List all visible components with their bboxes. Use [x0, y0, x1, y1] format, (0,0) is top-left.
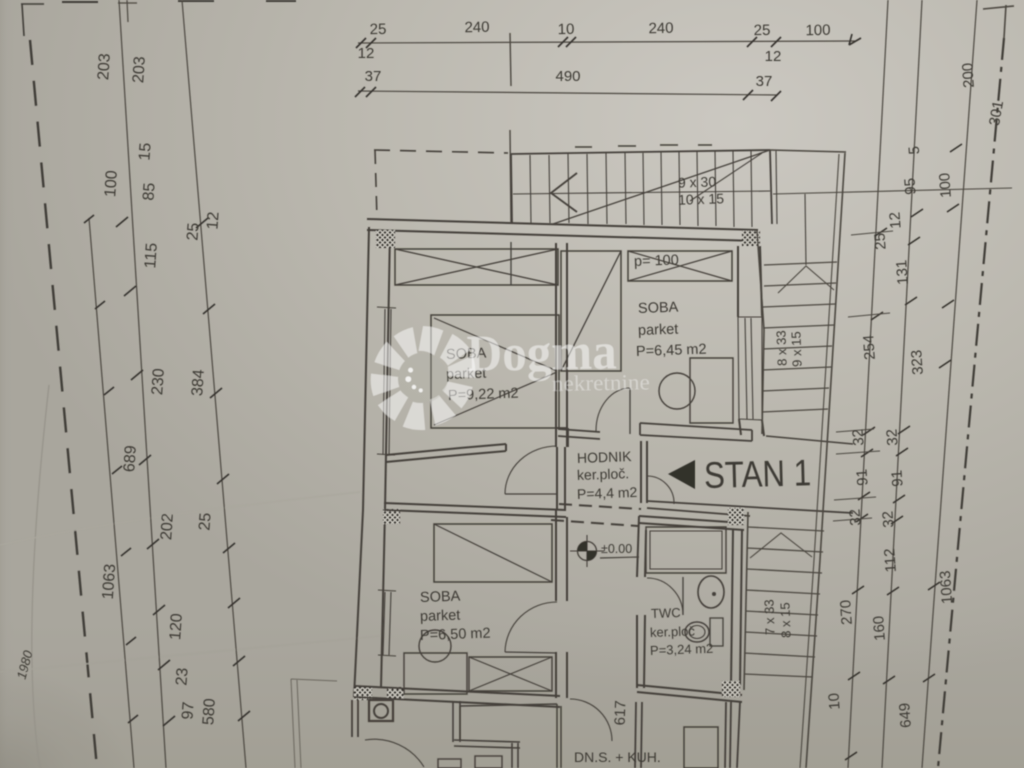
svg-text:SOBA: SOBA [638, 300, 679, 317]
svg-text:8 x 15: 8 x 15 [777, 602, 793, 638]
svg-text:32: 32 [879, 510, 897, 528]
svg-text:P=4,4 m2: P=4,4 m2 [577, 484, 638, 502]
svg-text:95: 95 [901, 177, 919, 195]
svg-text:TWC: TWC [651, 605, 681, 621]
svg-text:10: 10 [558, 21, 575, 38]
svg-text:37: 37 [756, 73, 773, 90]
svg-text:120: 120 [167, 613, 186, 641]
svg-text:580: 580 [200, 698, 219, 726]
svg-text:1063: 1063 [100, 563, 119, 600]
svg-text:DN.S. + KUH.: DN.S. + KUH. [574, 749, 661, 765]
svg-text:203: 203 [95, 53, 114, 81]
svg-text:384: 384 [189, 369, 208, 397]
svg-text:689: 689 [121, 445, 140, 473]
svg-text:±0.00: ±0.00 [601, 542, 632, 556]
svg-text:323: 323 [908, 349, 927, 375]
svg-text:91: 91 [853, 468, 871, 486]
svg-text:115: 115 [142, 242, 161, 269]
svg-text:23: 23 [173, 667, 191, 686]
svg-text:p= 100: p= 100 [634, 252, 679, 270]
svg-text:25: 25 [871, 232, 889, 250]
svg-text:9 x 30: 9 x 30 [678, 173, 717, 190]
svg-text:12: 12 [204, 211, 222, 230]
svg-text:240: 240 [464, 19, 489, 36]
svg-text:490: 490 [555, 68, 580, 85]
svg-text:254: 254 [860, 334, 879, 360]
svg-text:ker.ploč.: ker.ploč. [577, 465, 630, 483]
svg-text:100: 100 [102, 170, 121, 198]
svg-text:617: 617 [612, 700, 630, 726]
svg-text:STAN 1: STAN 1 [704, 452, 812, 496]
svg-text:nekretnine: nekretnine [552, 369, 650, 396]
svg-text:100: 100 [805, 22, 830, 39]
svg-text:ker.ploč: ker.ploč [650, 623, 696, 640]
svg-text:12: 12 [358, 45, 375, 62]
svg-text:parket: parket [420, 608, 461, 625]
svg-text:12: 12 [886, 211, 904, 229]
svg-text:SOBA: SOBA [420, 589, 461, 606]
svg-text:131: 131 [893, 259, 912, 285]
svg-text:85: 85 [140, 182, 158, 201]
svg-text:649: 649 [896, 702, 915, 728]
svg-text:112: 112 [881, 548, 900, 573]
svg-text:25: 25 [370, 21, 387, 38]
svg-text:10: 10 [825, 692, 843, 710]
svg-text:10 x 15: 10 x 15 [678, 190, 725, 208]
svg-text:100: 100 [936, 172, 955, 198]
svg-text:9 x 15: 9 x 15 [788, 331, 804, 367]
svg-text:parket: parket [638, 322, 679, 339]
svg-text:160: 160 [870, 615, 889, 641]
svg-text:32: 32 [846, 508, 864, 526]
svg-text:15: 15 [136, 142, 154, 161]
svg-text:240: 240 [648, 20, 673, 37]
svg-text:25: 25 [196, 512, 214, 531]
svg-text:HODNIK: HODNIK [577, 448, 633, 466]
svg-text:97: 97 [179, 701, 197, 720]
svg-text:203: 203 [130, 56, 149, 84]
svg-text:91: 91 [888, 469, 906, 487]
svg-text:P=6,50 m2: P=6,50 m2 [420, 626, 491, 644]
svg-text:202: 202 [158, 513, 177, 541]
svg-text:200: 200 [959, 62, 978, 88]
svg-text:37: 37 [365, 68, 382, 85]
svg-text:8 x 33: 8 x 33 [773, 330, 789, 366]
svg-text:32: 32 [883, 428, 901, 446]
svg-text:230: 230 [149, 368, 168, 396]
svg-text:1063: 1063 [937, 570, 956, 604]
svg-text:25: 25 [184, 222, 202, 241]
svg-text:12: 12 [765, 48, 782, 65]
svg-text:32: 32 [849, 428, 867, 446]
svg-text:25: 25 [754, 22, 771, 39]
svg-text:P=3,24 m2: P=3,24 m2 [650, 641, 714, 658]
svg-text:7 x 33: 7 x 33 [761, 599, 777, 635]
svg-text:5: 5 [906, 146, 924, 156]
svg-text:P=6,45 m2: P=6,45 m2 [636, 342, 707, 360]
svg-text:270: 270 [837, 599, 856, 625]
